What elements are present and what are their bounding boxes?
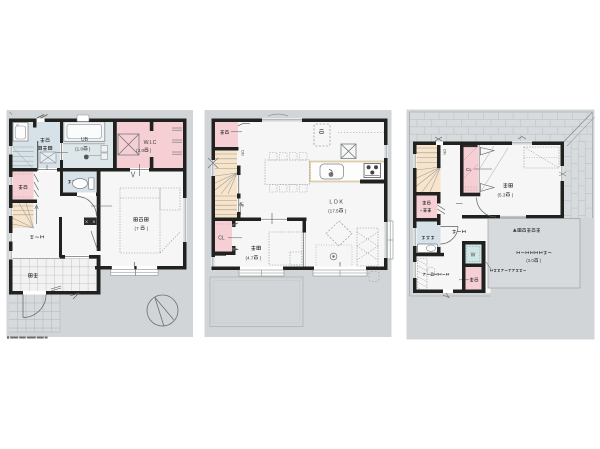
svg-text:CL: CL (218, 236, 225, 242)
svg-text:UP: UP (240, 202, 244, 206)
svg-text:(3.0: (3.0 (136, 148, 144, 153)
svg-text:(1.0: (1.0 (75, 147, 83, 152)
svg-text:UB: UB (81, 137, 89, 143)
svg-text:DN: DN (241, 150, 245, 156)
svg-text:DN: DN (443, 149, 447, 155)
svg-text:LDK: LDK (329, 200, 344, 206)
svg-text:W: W (471, 253, 476, 259)
svg-text:(4.7: (4.7 (246, 256, 254, 261)
svg-text:CL: CL (466, 167, 472, 173)
svg-text:(5.3: (5.3 (498, 193, 506, 198)
svg-text:(17.5: (17.5 (328, 209, 339, 214)
svg-text:(7: (7 (135, 226, 140, 231)
svg-text:(3.0: (3.0 (526, 258, 534, 263)
svg-text:W.I.C: W.I.C (144, 140, 157, 146)
